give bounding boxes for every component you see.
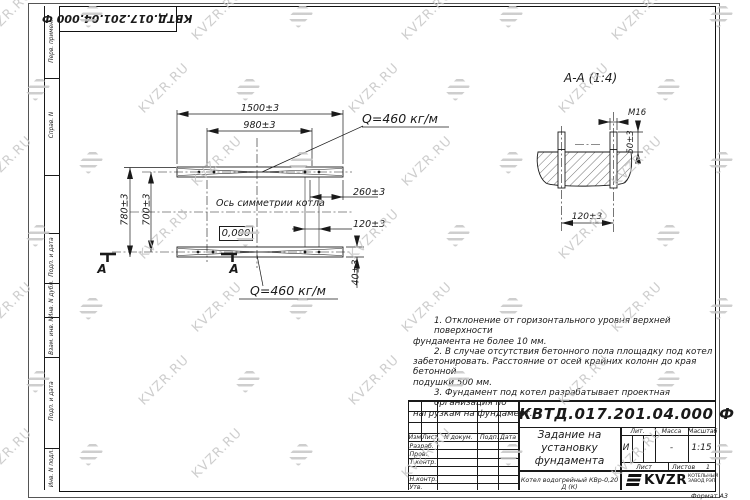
sheet-label: Лист bbox=[620, 464, 668, 471]
title-block: Изм Лист N докум. Подп. Дата Разраб. Про… bbox=[0, 0, 750, 500]
row-tkontr: Т.контр. bbox=[410, 459, 437, 466]
sheets-label: Листов bbox=[672, 464, 695, 471]
kvzr-logo-cell: KVZR КОТЕЛЬНЫЙ ЗАВОД РЭП bbox=[622, 471, 714, 489]
format-label: Формат А3 bbox=[691, 492, 728, 500]
col-podp: Подп. bbox=[480, 434, 499, 441]
col-data: Дата bbox=[500, 434, 516, 441]
lit-value: И bbox=[620, 443, 632, 453]
drawing-title-line2: установку bbox=[519, 442, 620, 455]
row-razrab: Разраб. bbox=[410, 443, 434, 450]
row-nkontr: Н.контр. bbox=[410, 476, 438, 483]
kvzr-logo-icon bbox=[626, 473, 642, 487]
row-utv: Утв. bbox=[410, 484, 423, 491]
product-name: Котел водогрейный КВр-0,20 Д (К) bbox=[519, 477, 620, 491]
kvzr-logo-text: KVZR bbox=[644, 472, 687, 488]
scale-value: 1:15 bbox=[688, 443, 715, 453]
kvzr-logo-sub2: ЗАВОД РЭП bbox=[688, 479, 718, 484]
lit-label: Лит. bbox=[620, 428, 655, 435]
col-ndoc: N докум. bbox=[444, 434, 473, 441]
drawing-title-line1: Задание на bbox=[519, 429, 620, 442]
doc-number: КВТД.017.201.04.000 Ф bbox=[519, 405, 715, 423]
scale-label: Масштаб bbox=[688, 428, 715, 435]
col-list: Лист bbox=[422, 434, 438, 441]
mass-value: - bbox=[655, 443, 688, 453]
sheets-value: 1 bbox=[706, 464, 710, 471]
mass-label: Масса bbox=[655, 428, 688, 435]
row-prov: Пров. bbox=[410, 451, 428, 458]
col-izm: Изм bbox=[409, 434, 422, 441]
drawing-title-line3: фундамента bbox=[519, 455, 620, 468]
drawing-sheet: Перв. примен. Справ. N Подп. и дата Инв.… bbox=[0, 0, 750, 500]
drawing-title: Задание на установку фундамента bbox=[519, 429, 620, 468]
